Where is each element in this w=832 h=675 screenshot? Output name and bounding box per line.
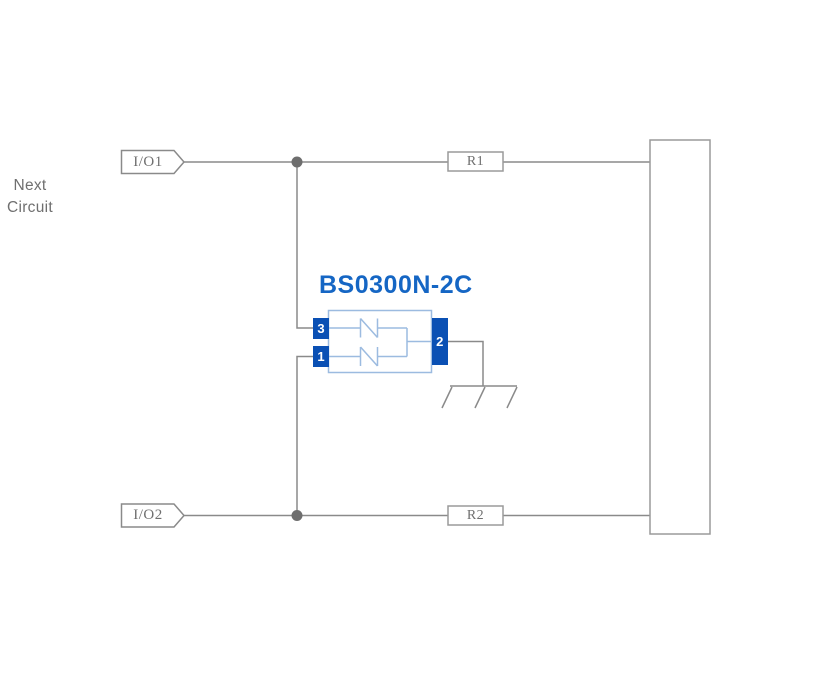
circuit-diagram: I/O1 I/O2 R1 R2 Next Circuit BS0300N-2C … [0, 0, 832, 675]
wire-pin1-to-junction2 [297, 357, 313, 516]
io2-label: I/O2 [121, 504, 175, 528]
ground-icon [442, 386, 517, 408]
pin-3: 3 [313, 318, 329, 339]
io1-label: I/O1 [121, 150, 175, 174]
next-circuit-box [650, 140, 710, 534]
resistor-r2-label: R2 [448, 506, 503, 525]
wire-pin2-to-ground [448, 342, 483, 387]
component-title: BS0300N-2C [319, 271, 473, 300]
resistor-r1-label: R1 [448, 152, 503, 171]
junction-dot-bottom [292, 510, 303, 521]
wire-junction1-to-pin3 [297, 162, 313, 328]
junction-dot-top [292, 157, 303, 168]
pin-1: 1 [313, 346, 329, 367]
diagram-graphics [0, 0, 832, 675]
pin-2: 2 [432, 318, 449, 365]
